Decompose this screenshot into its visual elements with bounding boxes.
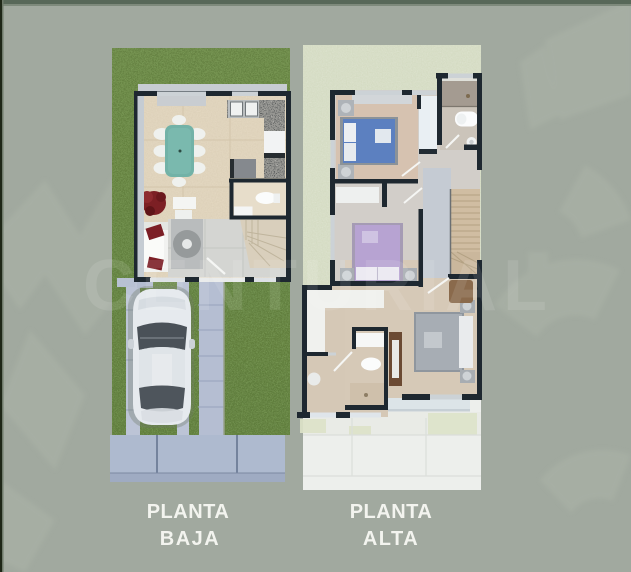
svg-text:ALTA: ALTA: [363, 528, 419, 550]
svg-text:CENTURIAL: CENTURIAL: [83, 246, 553, 326]
svg-text:PLANTA: PLANTA: [147, 501, 230, 523]
svg-text:PLANTA: PLANTA: [350, 501, 433, 523]
svg-text:BAJA: BAJA: [160, 528, 220, 550]
